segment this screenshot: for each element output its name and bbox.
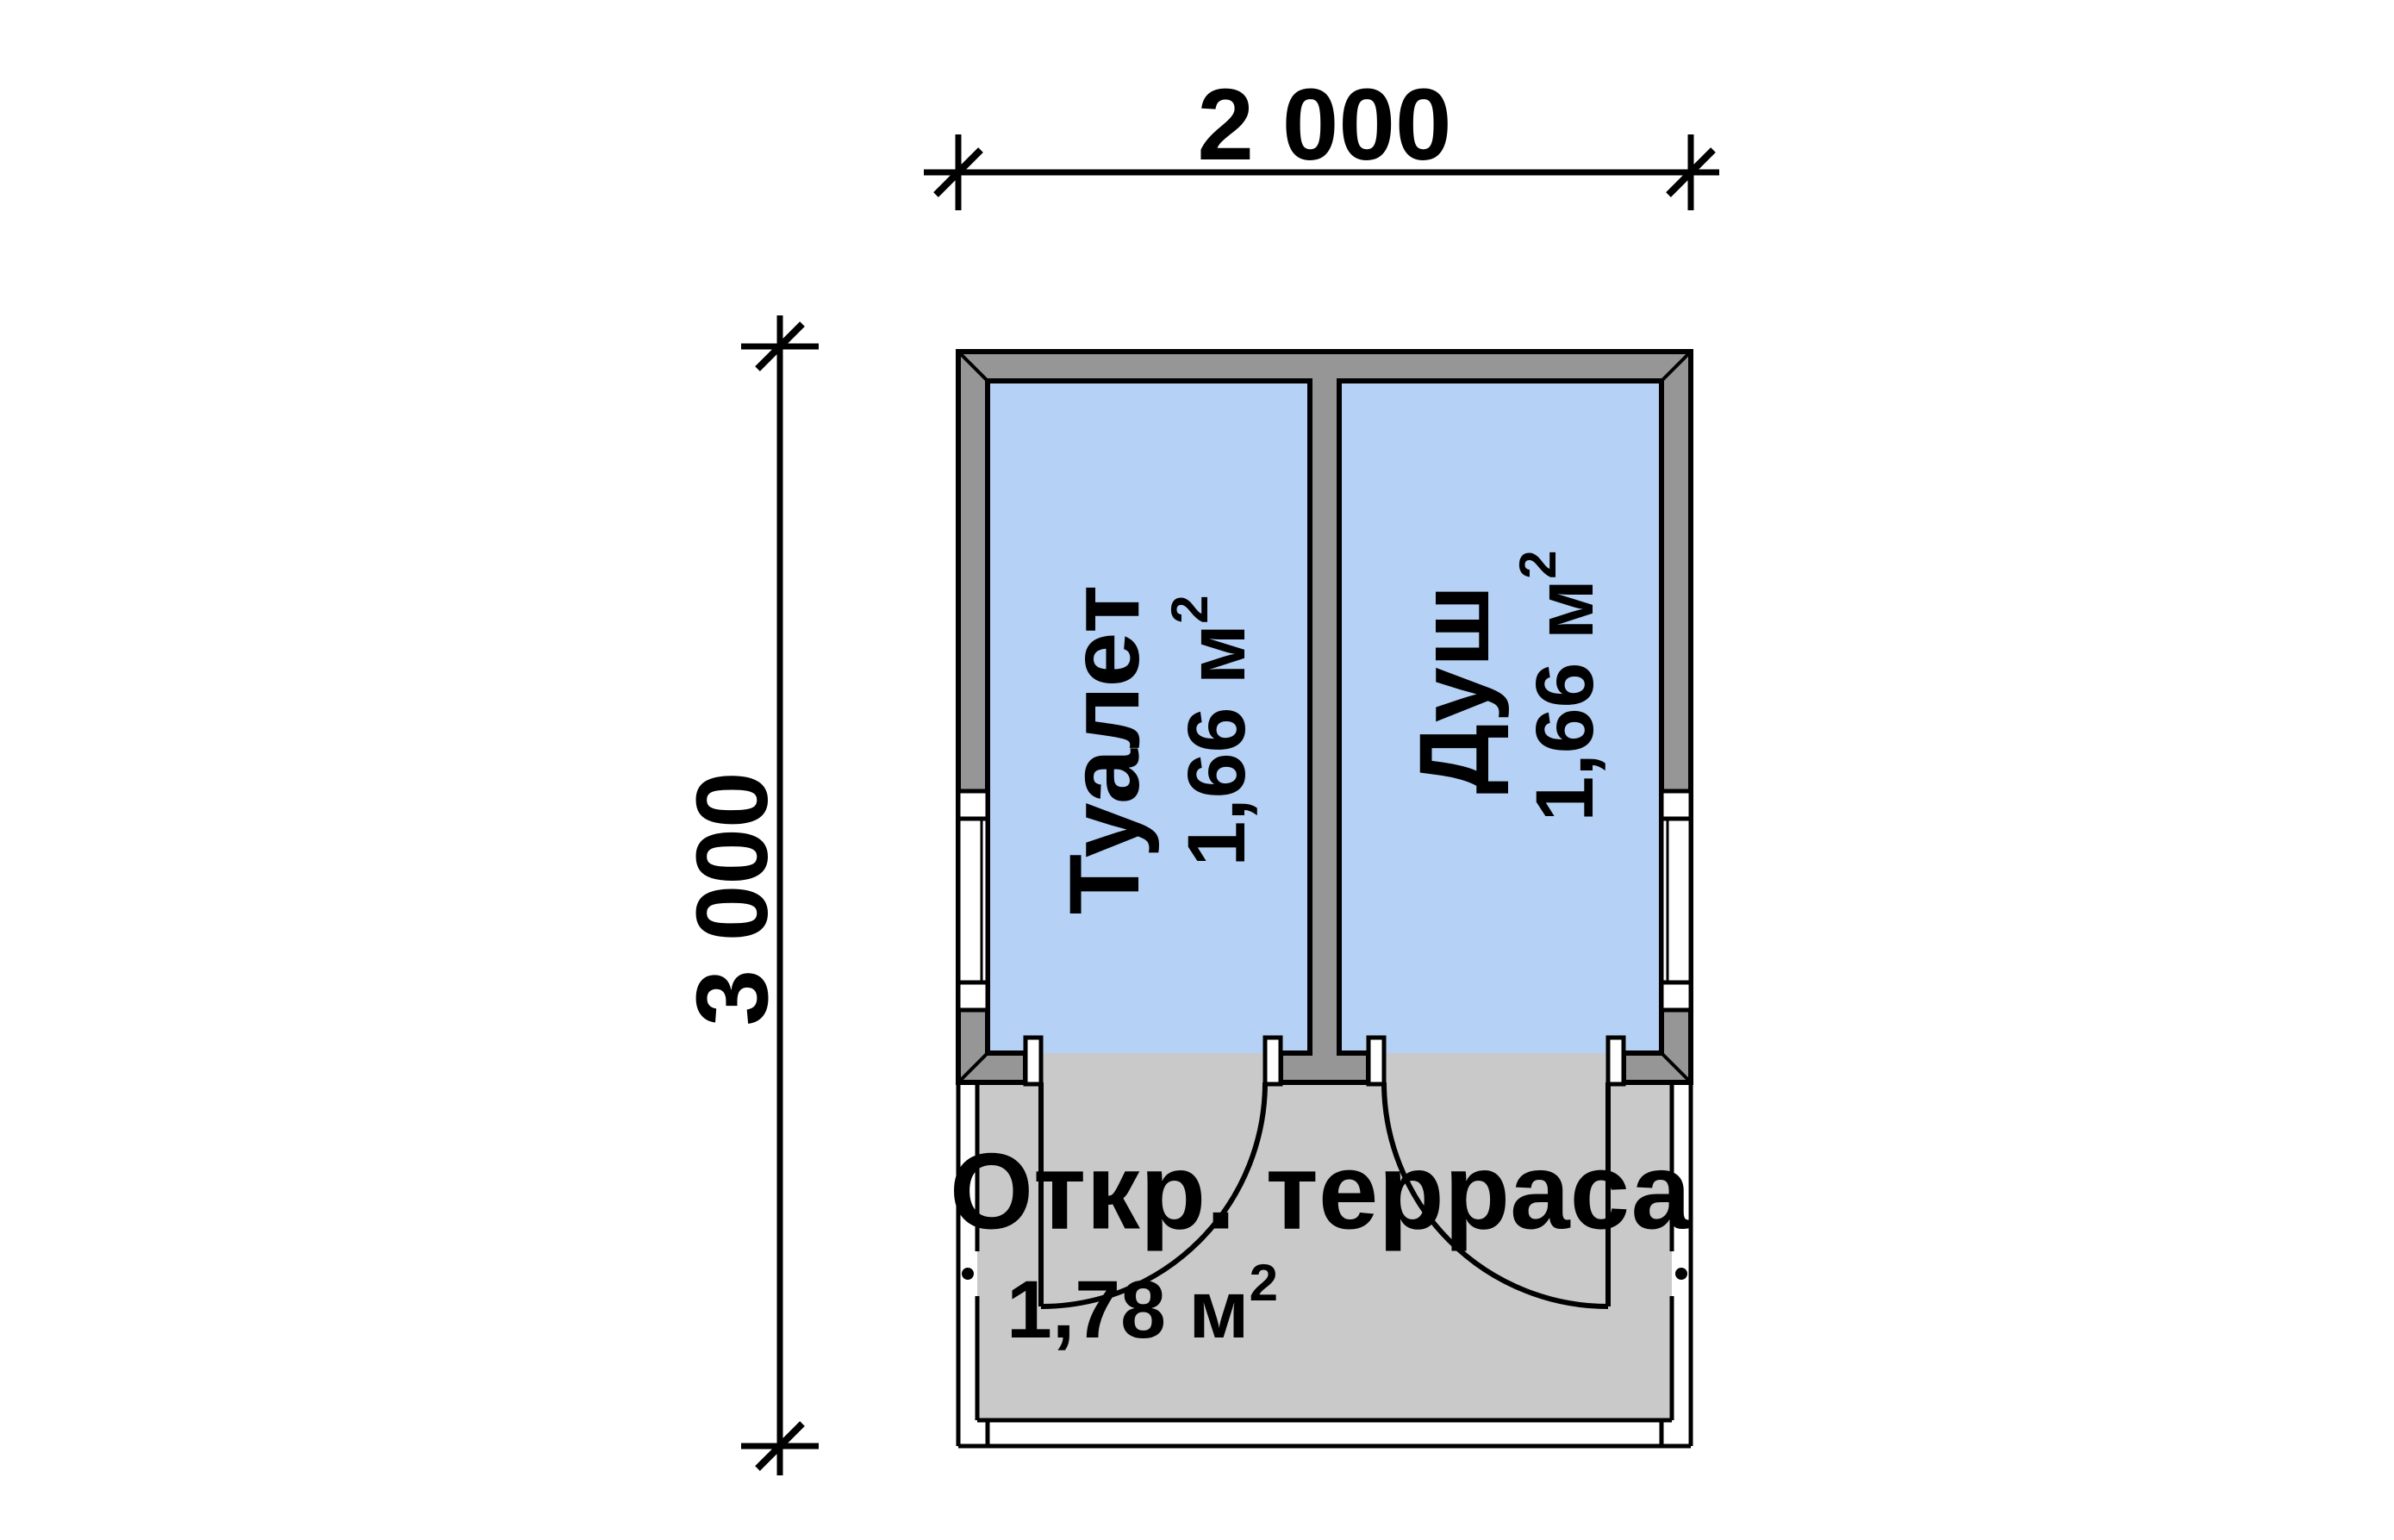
shower-door-jamb-right bbox=[1608, 1038, 1624, 1084]
terrace-area-superscript: 2 bbox=[1250, 1254, 1278, 1312]
toilet-door-jamb-left bbox=[1026, 1038, 1041, 1084]
toilet-door-jamb-right bbox=[1265, 1038, 1281, 1084]
toilet-room-area: 1,66 м2 bbox=[1161, 595, 1263, 867]
shower-room-area: 1,66 м2 bbox=[1509, 551, 1612, 822]
right-window-frame bbox=[1661, 791, 1691, 1010]
left-dimension-label: 3 000 bbox=[676, 771, 789, 1026]
right-window bbox=[1661, 791, 1691, 1010]
railing-right-post-dot bbox=[1675, 1268, 1687, 1280]
shower-door-opening-floor bbox=[1384, 1053, 1608, 1084]
shower-room-label: Душ bbox=[1400, 584, 1510, 794]
top-dimension-label: 2 000 bbox=[1197, 68, 1451, 182]
floor-plan-drawing: 2 000 3 000 Туалет 1,66 м2 Душ 1,66 м2 О… bbox=[0, 0, 2394, 1540]
toilet-room-area-value: 1,66 м bbox=[1171, 624, 1262, 867]
left-window-frame bbox=[958, 791, 988, 1010]
shower-room-area-value: 1,66 м bbox=[1519, 579, 1611, 822]
toilet-room-label: Туалет bbox=[1050, 585, 1160, 915]
floor-plan-page: 2 000 3 000 Туалет 1,66 м2 Душ 1,66 м2 О… bbox=[0, 0, 2394, 1540]
toilet-door-opening-floor bbox=[1041, 1053, 1265, 1084]
shower-room-area-superscript: 2 bbox=[1509, 551, 1567, 579]
toilet-room-area-superscript: 2 bbox=[1161, 595, 1219, 624]
shower-door-jamb-left bbox=[1368, 1038, 1384, 1084]
terrace-label: Откр. терраса bbox=[950, 1132, 1693, 1252]
terrace-area: 1,78 м2 bbox=[1007, 1254, 1278, 1356]
railing-left-post-dot bbox=[962, 1268, 974, 1280]
terrace-area-value: 1,78 м bbox=[1007, 1264, 1250, 1356]
left-window bbox=[958, 791, 988, 1010]
